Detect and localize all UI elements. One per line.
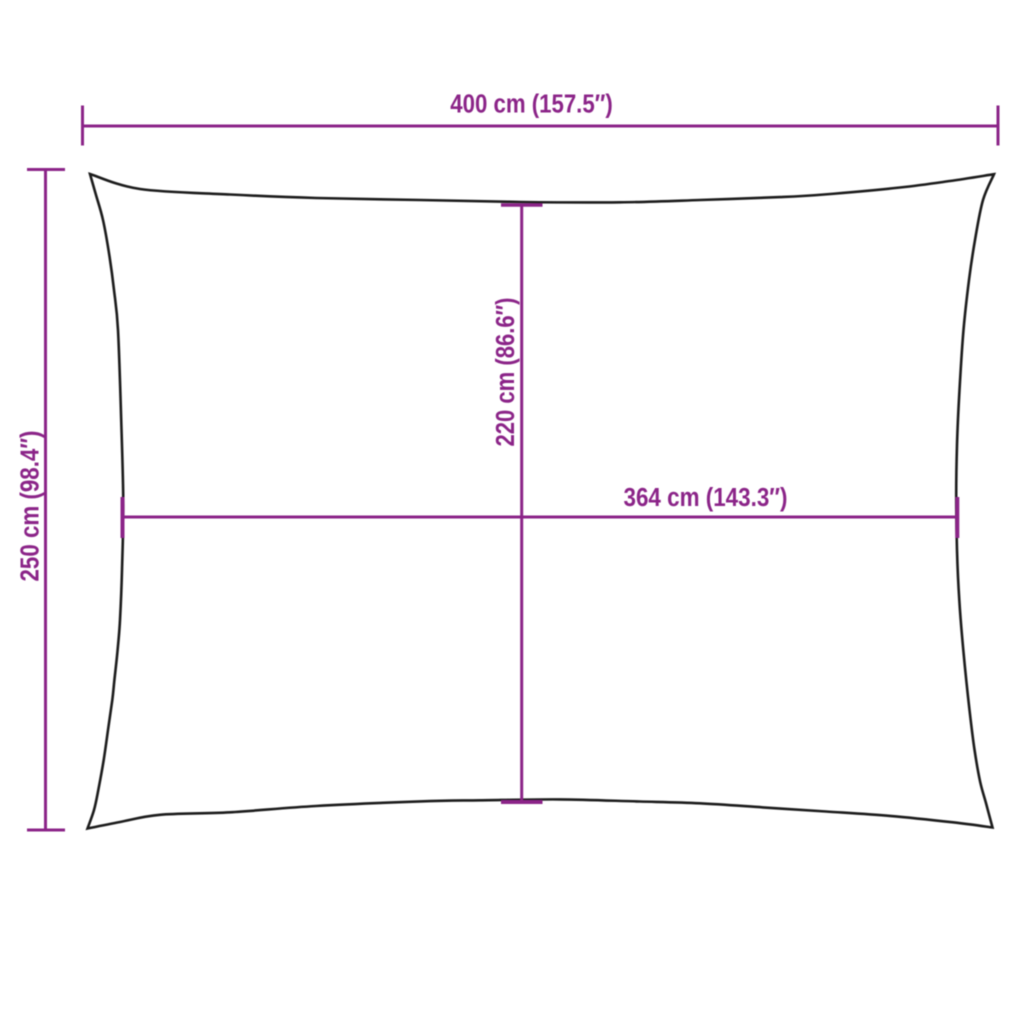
svg-text:220 cm (86.6″): 220 cm (86.6″) [492, 298, 520, 447]
svg-text:250 cm (98.4″): 250 cm (98.4″) [17, 431, 45, 582]
svg-text:400 cm (157.5″): 400 cm (157.5″) [450, 91, 613, 119]
svg-text:364 cm (143.3″): 364 cm (143.3″) [624, 484, 788, 512]
